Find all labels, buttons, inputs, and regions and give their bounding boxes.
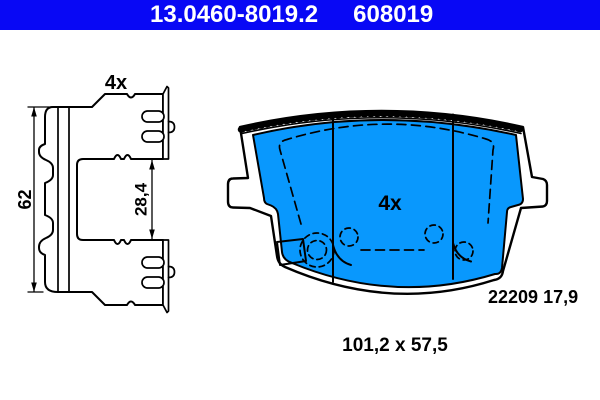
clip-slot: [142, 131, 164, 142]
clip-flange-bottom: [163, 240, 169, 313]
clip-height-dim-label: 62: [15, 189, 35, 209]
clip-quantity-label: 4x: [105, 72, 127, 94]
clip-lug-bottom: [169, 267, 175, 278]
clip-slot: [142, 277, 164, 288]
pad-quantity-label: 4x: [378, 192, 402, 215]
part-number: 13.0460-8019.2: [150, 0, 318, 30]
clip-slot: [142, 111, 164, 122]
reference-number: 608019: [353, 0, 433, 30]
title-bar: 13.0460-8019.2 608019: [0, 0, 600, 30]
drawing-sheet: 13.0460-8019.2 608019: [0, 0, 600, 400]
overall-dimensions: 101,2 x 57,5: [300, 335, 490, 357]
clip-flange-top: [163, 87, 169, 160]
accessory-clip-drawing: 62 28,4 4x: [15, 60, 195, 320]
pad-thickness: 17,9: [543, 287, 578, 307]
brake-pad-drawing: 4x: [225, 103, 565, 303]
clip-gap-dim-label: 28,4: [132, 182, 151, 216]
pad-code-and-thickness: 22209 17,9: [488, 287, 578, 308]
clip-slot: [142, 257, 164, 268]
pad-code: 22209: [488, 287, 538, 307]
clip-lug-top: [169, 122, 175, 133]
